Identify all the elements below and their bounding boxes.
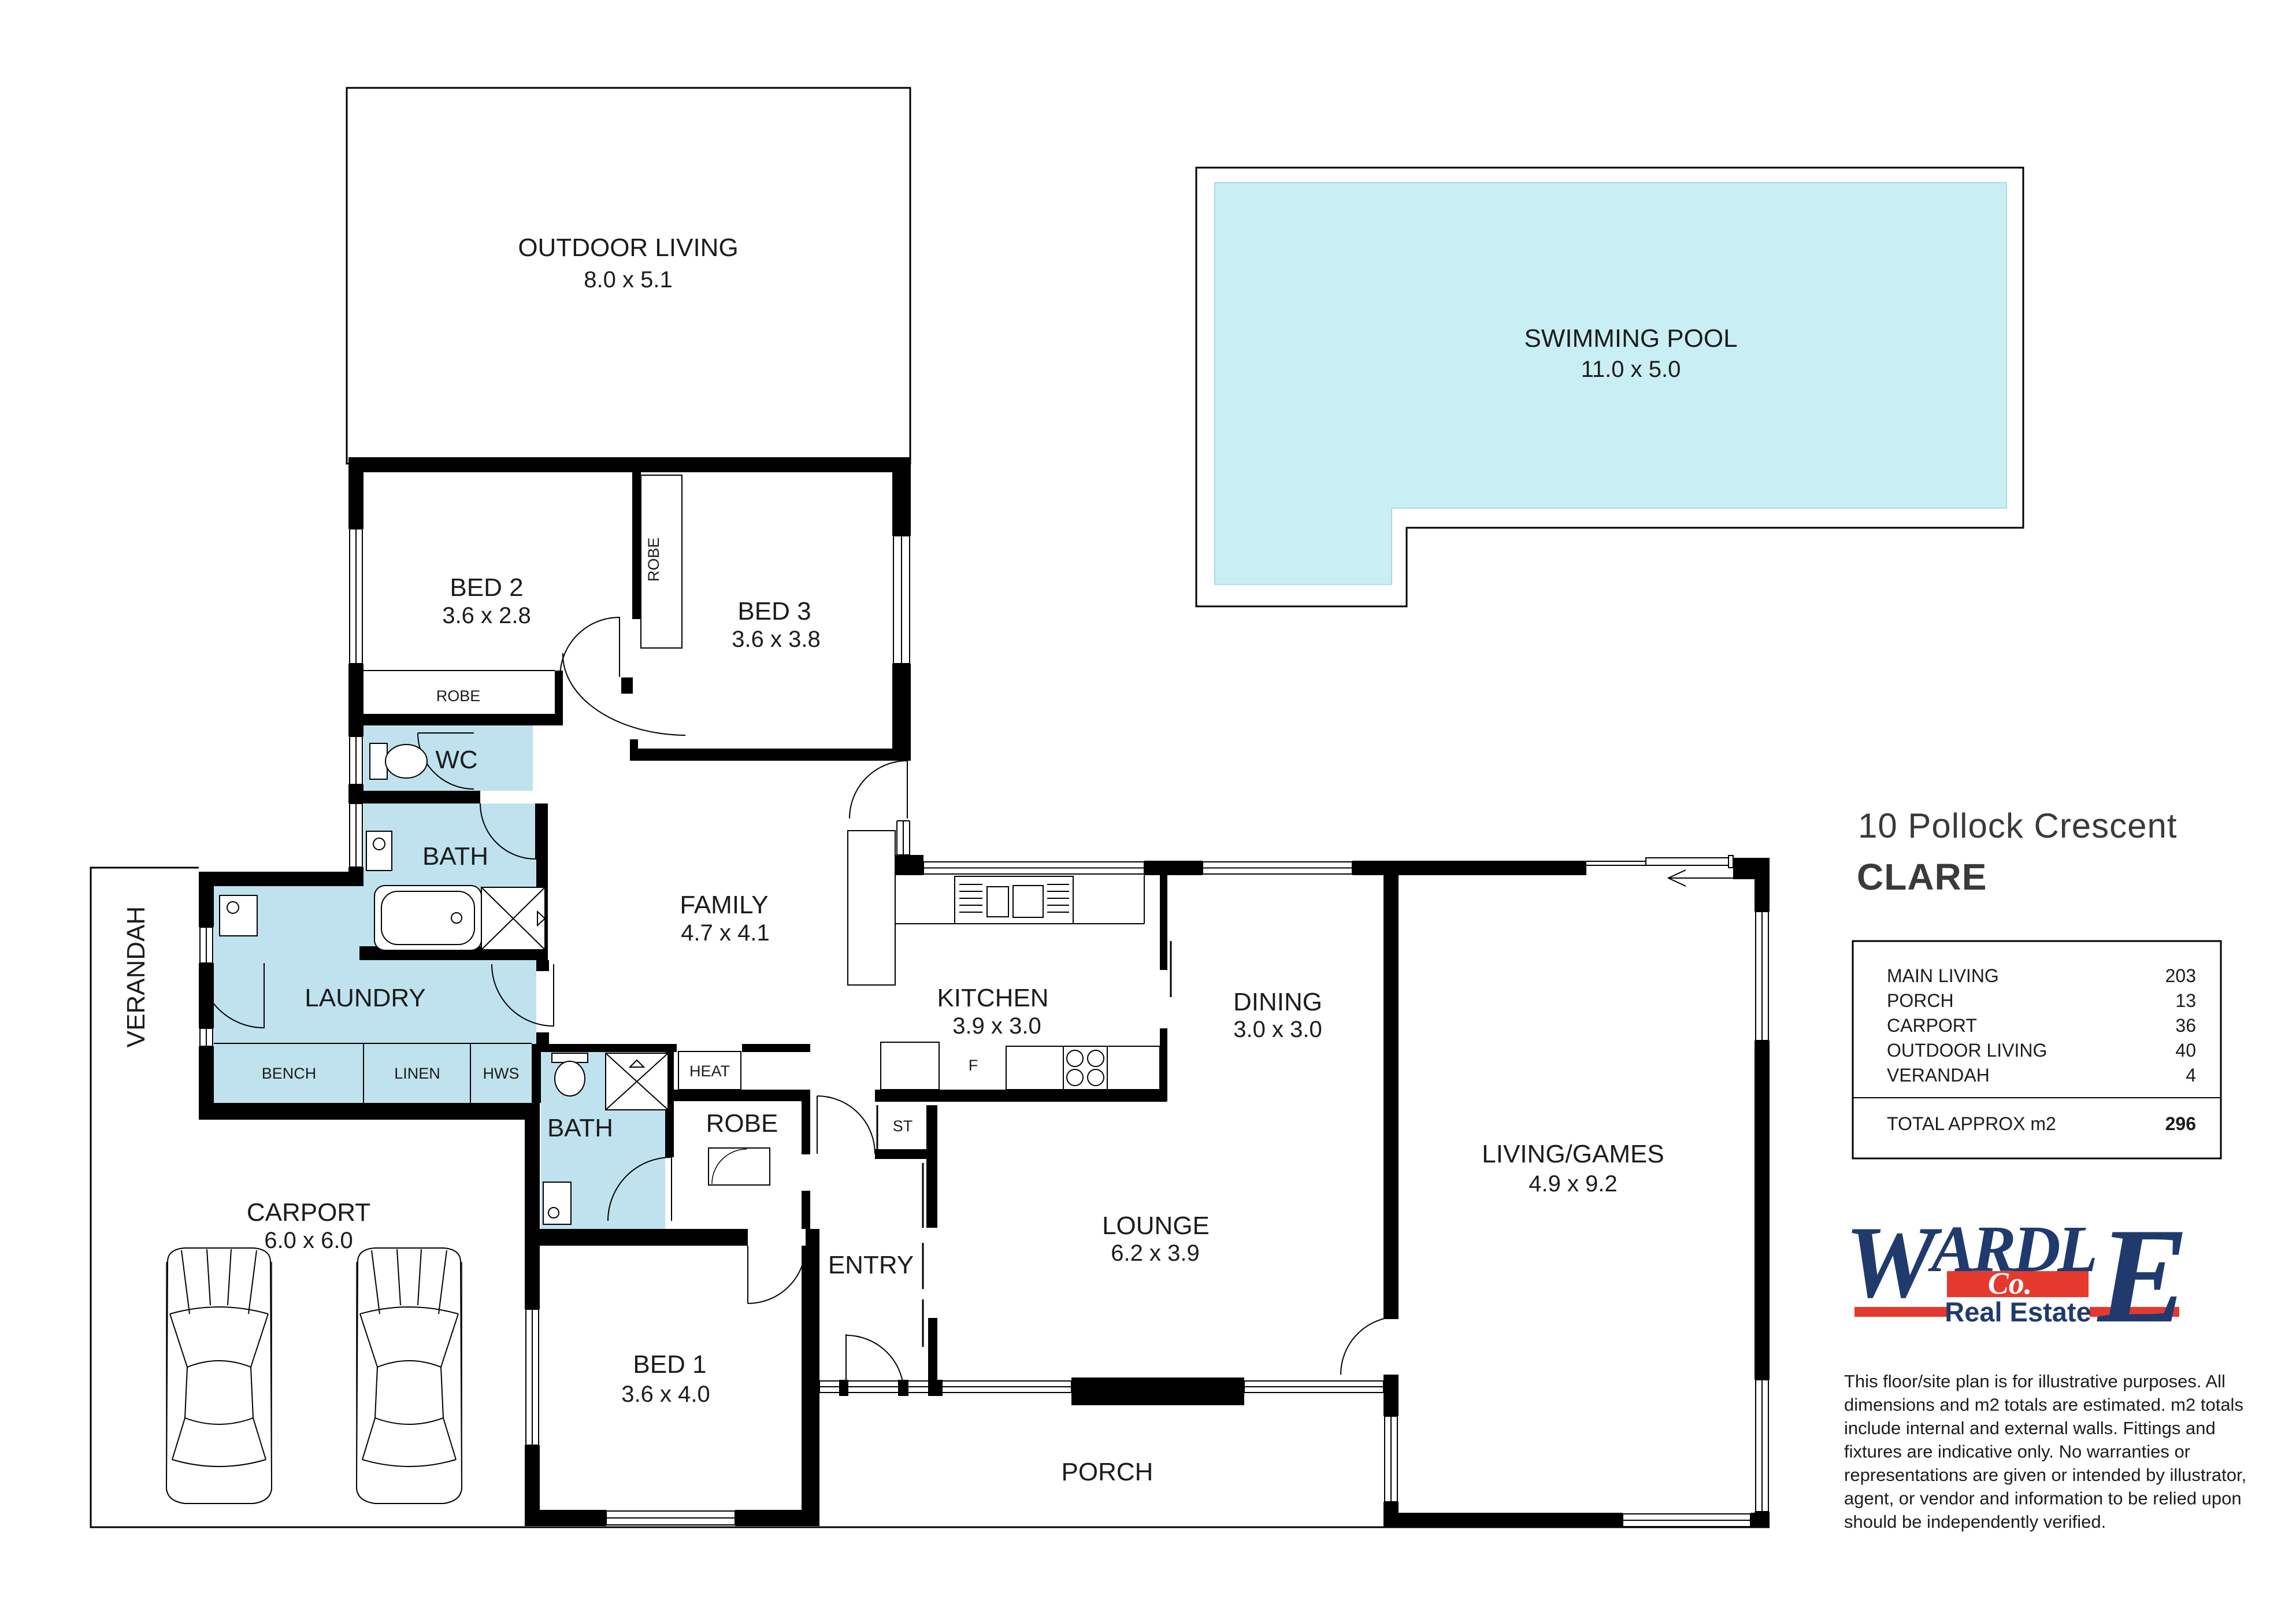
svg-text:40: 40 (2175, 1040, 2196, 1061)
svg-text:BED 3: BED 3 (737, 597, 811, 625)
svg-text:3.6 x 2.8: 3.6 x 2.8 (442, 603, 531, 628)
svg-text:This floor/site plan is for il: This floor/site plan is for illustrative… (1844, 1371, 2225, 1391)
svg-text:4: 4 (2186, 1065, 2196, 1086)
svg-text:BENCH: BENCH (262, 1065, 317, 1082)
svg-text:LOUNGE: LOUNGE (1102, 1212, 1210, 1240)
svg-text:296: 296 (2165, 1113, 2196, 1134)
svg-text:MAIN LIVING: MAIN LIVING (1887, 965, 1999, 986)
svg-text:OUTDOOR LIVING: OUTDOOR LIVING (1887, 1040, 2047, 1061)
svg-text:ROBE: ROBE (706, 1109, 778, 1138)
svg-text:BATH: BATH (547, 1114, 613, 1142)
svg-text:VERANDAH: VERANDAH (122, 906, 150, 1048)
svg-text:BED 2: BED 2 (450, 573, 523, 602)
svg-text:FAMILY: FAMILY (680, 891, 768, 919)
svg-text:fixtures are indicative only.: fixtures are indicative only. No warrant… (1844, 1442, 2190, 1462)
svg-text:LINEN: LINEN (394, 1065, 440, 1082)
svg-text:F: F (969, 1057, 978, 1074)
svg-text:ROBE: ROBE (436, 687, 481, 705)
svg-text:KITCHEN: KITCHEN (937, 984, 1048, 1012)
svg-text:representations are given or i: representations are given or intended by… (1844, 1465, 2246, 1485)
svg-text:ENTRY: ENTRY (828, 1251, 914, 1279)
svg-text:ST: ST (893, 1117, 913, 1135)
svg-text:3.6 x 4.0: 3.6 x 4.0 (621, 1382, 710, 1407)
svg-text:3.6 x 3.8: 3.6 x 3.8 (732, 627, 820, 652)
svg-text:include internal and external: include internal and external walls. Fit… (1844, 1418, 2216, 1438)
svg-text:Co.: Co. (1988, 1266, 2032, 1301)
svg-text:8.0 x 5.1: 8.0 x 5.1 (584, 267, 672, 292)
svg-text:BATH: BATH (422, 842, 488, 871)
svg-text:3.0 x 3.0: 3.0 x 3.0 (1233, 1017, 1322, 1042)
svg-text:LAUNDRY: LAUNDRY (305, 984, 425, 1012)
svg-text:VERANDAH: VERANDAH (1887, 1065, 1990, 1086)
svg-text:SWIMMING POOL: SWIMMING POOL (1524, 324, 1737, 353)
svg-text:6.0 x 6.0: 6.0 x 6.0 (264, 1228, 353, 1253)
svg-text:CARPORT: CARPORT (247, 1198, 370, 1227)
svg-text:DINING: DINING (1233, 988, 1322, 1016)
svg-text:4.9 x 9.2: 4.9 x 9.2 (1529, 1171, 1617, 1197)
svg-text:LIVING/GAMES: LIVING/GAMES (1482, 1140, 1664, 1168)
svg-text:agent, or vendor and informati: agent, or vendor and information to be r… (1844, 1488, 2242, 1509)
svg-text:6.2 x 3.9: 6.2 x 3.9 (1111, 1240, 1199, 1266)
svg-text:PORCH: PORCH (1062, 1458, 1153, 1486)
svg-text:W: W (1845, 1205, 1942, 1319)
svg-text:should be independently verifi: should be independently verified. (1844, 1512, 2106, 1532)
svg-text:CARPORT: CARPORT (1887, 1015, 1977, 1036)
svg-text:203: 203 (2165, 965, 2196, 986)
svg-text:3.9 x 3.0: 3.9 x 3.0 (952, 1013, 1041, 1039)
svg-text:BED 1: BED 1 (633, 1350, 706, 1379)
svg-text:PORCH: PORCH (1887, 990, 1954, 1011)
svg-text:4.7 x 4.1: 4.7 x 4.1 (681, 920, 769, 946)
svg-text:11.0 x 5.0: 11.0 x 5.0 (1581, 357, 1681, 382)
svg-text:HEAT: HEAT (689, 1062, 730, 1080)
svg-text:WC: WC (435, 746, 477, 774)
svg-text:HWS: HWS (483, 1065, 520, 1082)
svg-text:TOTAL APPROX m2: TOTAL APPROX m2 (1887, 1113, 2056, 1134)
svg-text:dimensions and m2 totals are e: dimensions and m2 totals are estimated. … (1844, 1395, 2243, 1415)
svg-text:OUTDOOR LIVING: OUTDOOR LIVING (518, 234, 738, 262)
svg-text:36: 36 (2175, 1015, 2196, 1036)
svg-text:E: E (2097, 1201, 2189, 1351)
svg-text:Real Estate: Real Estate (1945, 1297, 2091, 1327)
svg-text:CLARE: CLARE (1857, 856, 1987, 898)
svg-text:10 Pollock Crescent: 10 Pollock Crescent (1858, 806, 2178, 845)
svg-text:13: 13 (2175, 990, 2196, 1011)
svg-text:ROBE: ROBE (645, 538, 662, 582)
